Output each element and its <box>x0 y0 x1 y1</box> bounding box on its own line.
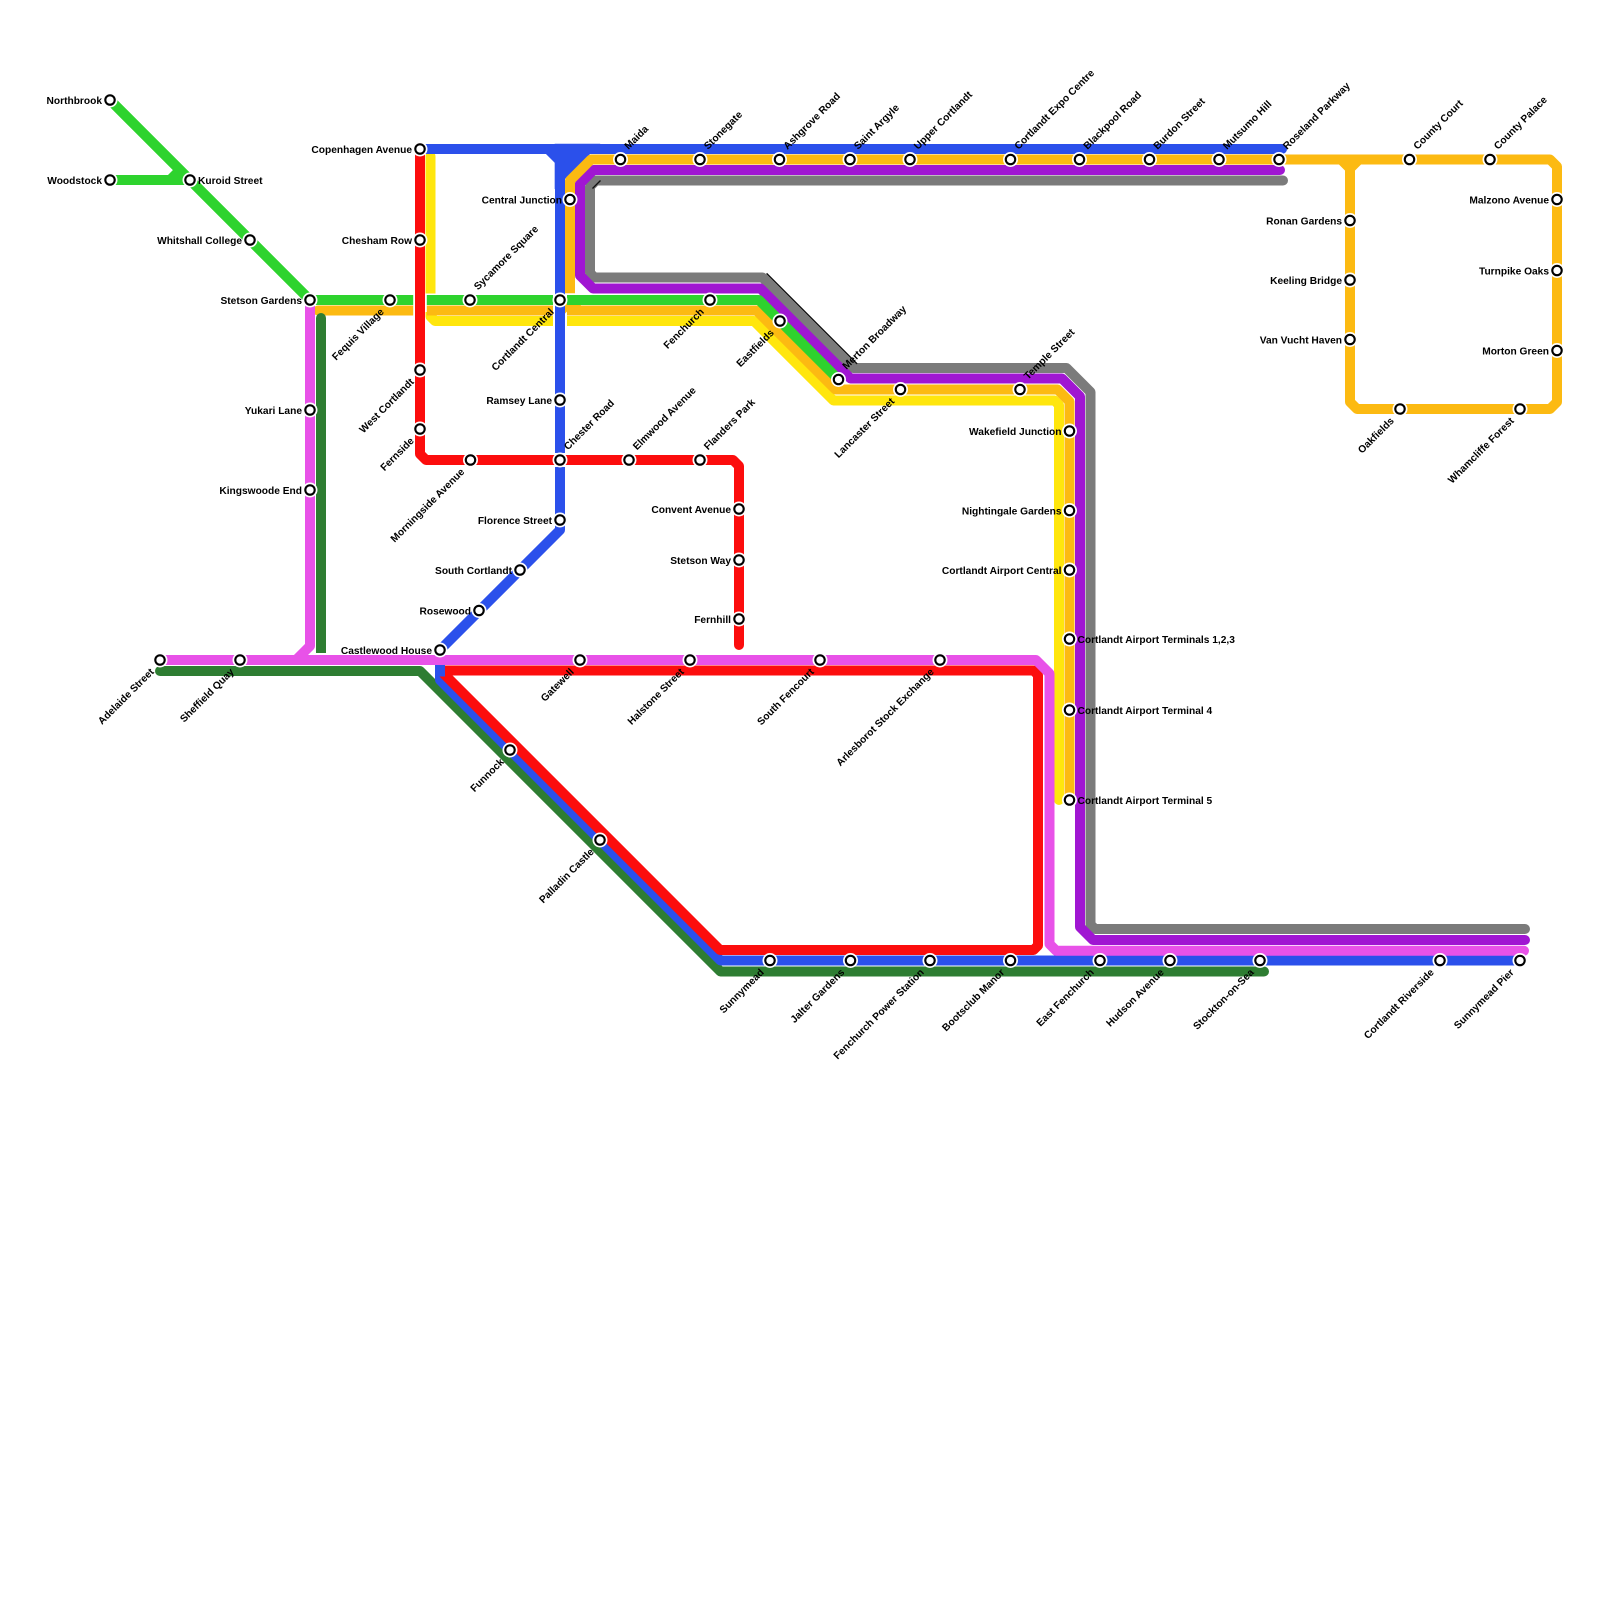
svg-text:Florence Street: Florence Street <box>478 516 553 527</box>
svg-text:Malzono Avenue: Malzono Avenue <box>1469 196 1549 207</box>
svg-text:Chesham Row: Chesham Row <box>342 236 412 247</box>
svg-text:Central Junction: Central Junction <box>482 196 562 207</box>
svg-text:Cortlandt Airport Terminal 4: Cortlandt Airport Terminal 4 <box>1078 706 1213 717</box>
svg-text:Cortlandt Airport Central: Cortlandt Airport Central <box>942 566 1062 577</box>
svg-text:Keeling Bridge: Keeling Bridge <box>1270 276 1342 287</box>
svg-text:Stetson Way: Stetson Way <box>670 556 731 567</box>
svg-text:Woodstock: Woodstock <box>47 176 102 187</box>
svg-text:South Cortlandt: South Cortlandt <box>435 566 513 577</box>
svg-text:Rosewood: Rosewood <box>419 607 471 618</box>
svg-text:Cortlandt Airport Terminals 1,: Cortlandt Airport Terminals 1,2,3 <box>1078 635 1236 646</box>
svg-text:Yukari Lane: Yukari Lane <box>245 406 303 417</box>
svg-text:Wakefield Junction: Wakefield Junction <box>969 427 1061 438</box>
svg-text:Ronan Gardens: Ronan Gardens <box>1266 217 1342 228</box>
svg-text:Northbrook: Northbrook <box>47 96 103 107</box>
svg-text:Convent Avenue: Convent Avenue <box>651 505 731 516</box>
svg-text:Nightingale Gardens: Nightingale Gardens <box>962 507 1062 518</box>
svg-text:Kuroid Street: Kuroid Street <box>198 176 263 187</box>
svg-text:Kingswoode End: Kingswoode End <box>219 486 302 497</box>
svg-text:Stetson Gardens: Stetson Gardens <box>220 296 302 307</box>
svg-text:Ramsey Lane: Ramsey Lane <box>486 396 552 407</box>
svg-text:Fernhill: Fernhill <box>694 615 731 626</box>
svg-text:Copenhagen Avenue: Copenhagen Avenue <box>311 145 412 156</box>
svg-text:Cortlandt Airport Terminal 5: Cortlandt Airport Terminal 5 <box>1078 796 1213 807</box>
svg-text:Morton Green: Morton Green <box>1482 347 1549 358</box>
svg-text:Castlewood House: Castlewood House <box>341 646 432 657</box>
svg-text:Whitshall College: Whitshall College <box>157 236 242 247</box>
svg-text:Van Vucht Haven: Van Vucht Haven <box>1260 336 1342 347</box>
svg-text:Turnpike Oaks: Turnpike Oaks <box>1479 267 1549 278</box>
